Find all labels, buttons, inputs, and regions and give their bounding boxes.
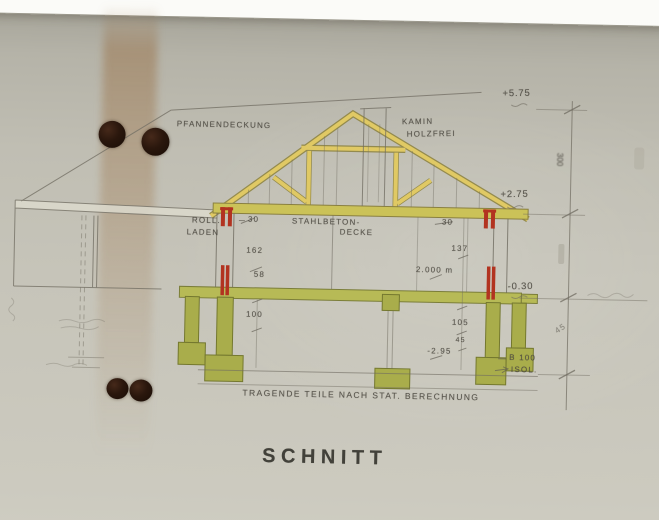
dim-sill: 58 <box>254 270 265 279</box>
level-eaves: +2.75 <box>500 189 528 200</box>
drawing-paper: PFANNENDECKUNG KAMIN HOLZFREI +5.75 +2.7… <box>0 12 659 520</box>
dim-slab-left: 30 <box>248 215 259 224</box>
label-roof-covering: PFANNENDECKUNG <box>177 119 272 130</box>
label-chimney-2: HOLZFREI <box>407 129 456 139</box>
label-ceiling-slab-2: DECKE <box>340 228 374 238</box>
level-ground: -0.30 <box>508 281 534 292</box>
basement-walls <box>178 290 535 391</box>
dim-slab-right: 30 <box>442 218 453 227</box>
dim-basement-right: 105 <box>452 318 469 327</box>
level-ridge: +5.75 <box>502 88 530 99</box>
label-chimney-1: KAMIN <box>402 117 433 126</box>
drawing-sheet: PFANNENDECKUNG KAMIN HOLZFREI +5.75 +2.7… <box>0 0 659 520</box>
level-basement-floor: -2.95 <box>427 346 451 355</box>
label-shutter-1: ROLL. <box>192 216 221 226</box>
label-floor-grade: B 100 <box>509 353 536 363</box>
dim-basement-left: 100 <box>246 310 263 319</box>
dim-parapet: 162 <box>246 246 263 255</box>
label-ceiling-slab-1: STAHLBETON- <box>292 217 361 227</box>
dim-roof-storey-height: 300 <box>555 153 564 167</box>
faint-smudge-2 <box>558 244 564 264</box>
label-shutter-2: LADEN <box>187 227 220 237</box>
wall-plate-beam <box>213 203 528 219</box>
faint-smudge <box>634 147 644 169</box>
label-insulation: ISOL. <box>511 365 538 375</box>
dim-right-wall: 137 <box>451 244 468 253</box>
scanned-section-drawing-photo: PFANNENDECKUNG KAMIN HOLZFREI +5.75 +2.7… <box>0 0 659 520</box>
dim-floor-slab: 45 <box>455 337 465 344</box>
dim-lintel: 2.000 m <box>416 265 453 275</box>
drawing-title: SCHNITT <box>262 445 388 471</box>
section-linework <box>0 0 659 520</box>
